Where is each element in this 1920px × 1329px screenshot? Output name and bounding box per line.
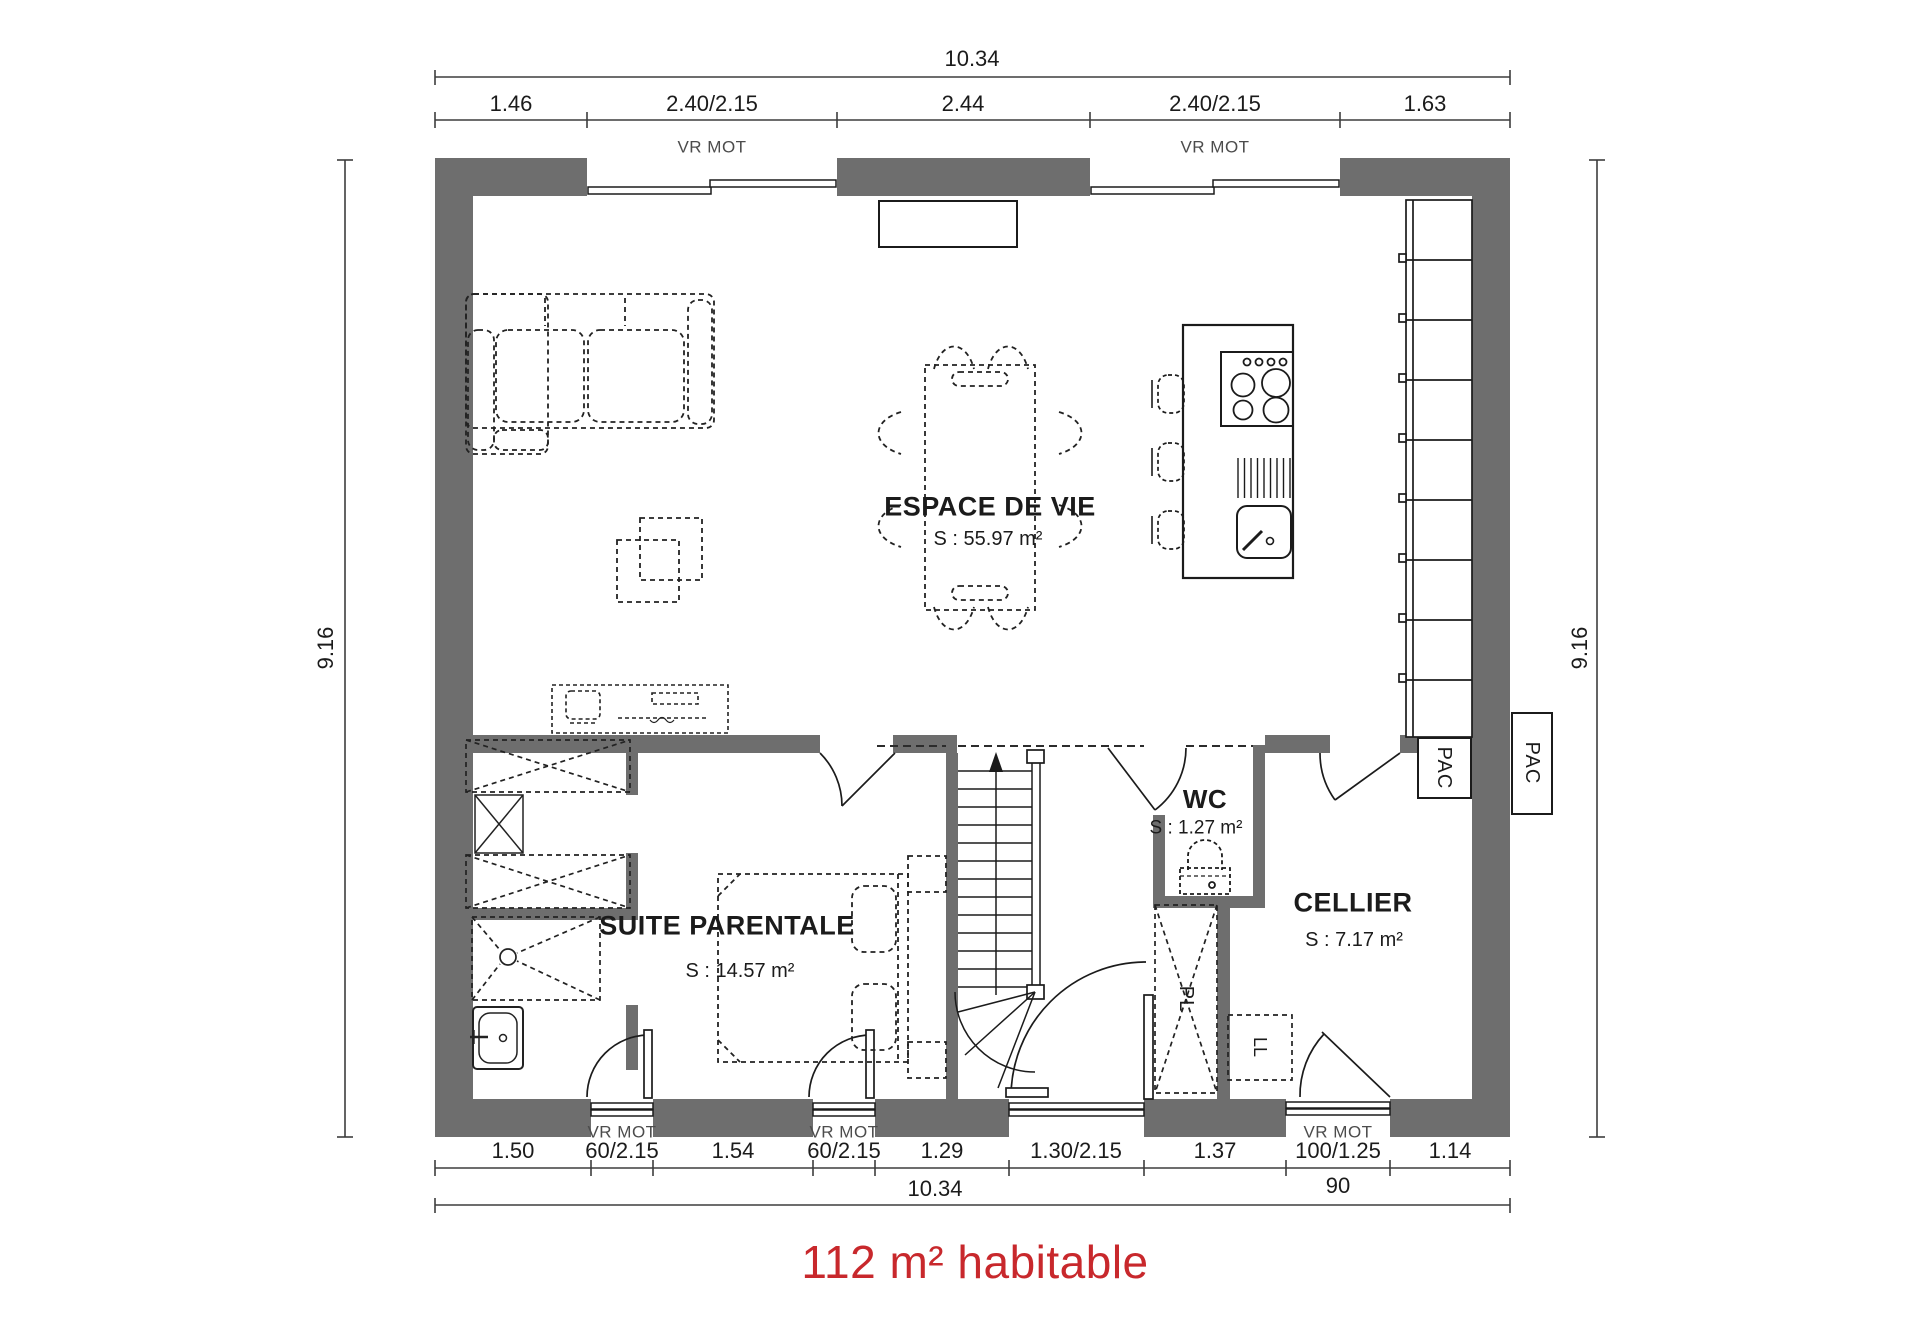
wall-suite-north-stub — [893, 735, 957, 753]
dim-bottom-seg: 1.50 — [492, 1140, 535, 1162]
dim-top-seg: 1.46 — [490, 93, 533, 115]
wall-pl-right — [1217, 905, 1230, 1099]
shutter-label: VR MOT — [587, 1124, 656, 1141]
dim-bottom-seg: 100/1.25 — [1295, 1140, 1381, 1162]
chair-icon — [934, 607, 974, 630]
dim-bottom-overall: 10.34 — [907, 1178, 962, 1200]
shutter-label: VR MOT — [677, 139, 746, 156]
coffee-table-icon — [617, 518, 702, 602]
dim-bottom-seg: 1.54 — [712, 1140, 755, 1162]
pl-label: PL — [1176, 986, 1196, 1012]
dim-bottom-seg: 1.30/2.15 — [1030, 1140, 1122, 1162]
door-swing-icon — [1011, 962, 1153, 1099]
sill-icon — [1009, 1103, 1144, 1116]
dim-top-seg: 1.63 — [1404, 93, 1447, 115]
toilet-icon — [1180, 840, 1230, 894]
sofa-icon — [466, 294, 714, 454]
door-swing-icon — [809, 1030, 874, 1098]
wall-bottom-segment — [1144, 1099, 1286, 1137]
dim-right: 9.16 — [1569, 627, 1591, 670]
stove-icon — [1221, 352, 1293, 426]
shutter-label: VR MOT — [1303, 1124, 1372, 1141]
wall-bath-stub1 — [626, 737, 638, 795]
nightstand-icon — [908, 856, 946, 1078]
sill-icon — [591, 1103, 653, 1116]
pac-label: PAC — [1522, 742, 1542, 785]
dim-top-overall: 10.34 — [944, 48, 999, 70]
wall-bath-stub3 — [626, 1005, 638, 1070]
room-name-wc: WC — [1183, 786, 1227, 812]
shower-icon — [472, 917, 600, 1000]
sill-icon — [813, 1103, 875, 1116]
stairs-icon — [955, 750, 1048, 1097]
chair-icon — [988, 607, 1028, 630]
dim-door-swing: 90 — [1326, 1175, 1350, 1197]
wall-wc-right — [1253, 745, 1265, 908]
door-swing-icon — [1108, 748, 1186, 810]
dim-bottom-seg: 60/2.15 — [585, 1140, 658, 1162]
chair-icon — [1059, 412, 1082, 454]
room-area-wc: S : 1.27 m² — [1150, 819, 1243, 838]
dim-bottom-seg: 1.37 — [1194, 1140, 1237, 1162]
sliding-window-icon — [1091, 180, 1339, 194]
door-swing-icon — [587, 1030, 652, 1098]
shutter-label: VR MOT — [1180, 139, 1249, 156]
sideboard — [878, 200, 1018, 248]
desk-icon — [552, 685, 728, 733]
pac-label: PAC — [1434, 747, 1454, 790]
floor-plan: 10.34 1.46 2.40/2.15 2.44 2.40/2.15 1.63… — [0, 0, 1920, 1329]
dim-left: 9.16 — [315, 627, 337, 670]
dining-table-icon — [879, 347, 1082, 630]
dim-top-seg: 2.40/2.15 — [666, 93, 758, 115]
sliding-window-icon — [588, 180, 836, 194]
dim-top-seg: 2.40/2.15 — [1169, 93, 1261, 115]
room-area-cellier: S : 7.17 m² — [1305, 930, 1403, 950]
room-area-living: S : 55.97 m² — [934, 529, 1043, 549]
dim-bottom-seg: 60/2.15 — [807, 1140, 880, 1162]
dim-bottom-seg: 1.29 — [921, 1140, 964, 1162]
wall-right — [1472, 158, 1510, 1137]
wall-top-segment — [837, 158, 1090, 196]
room-name-suite: SUITE PARENTALE — [599, 913, 855, 940]
door-swing-icon — [820, 753, 895, 806]
shutter-label: VR MOT — [809, 1124, 878, 1141]
kitchen-cabinets-icon — [1399, 200, 1472, 737]
bar-stool-icon — [1158, 375, 1184, 549]
wall-bottom-segment — [875, 1099, 1009, 1137]
room-name-living: ESPACE DE VIE — [884, 494, 1096, 521]
room-area-suite: S : 14.57 m² — [686, 961, 795, 981]
wall-wc-bottom — [1153, 896, 1265, 908]
drainer-icon — [1238, 458, 1290, 498]
sill-icon — [1286, 1102, 1390, 1115]
wall-bottom-segment — [653, 1099, 813, 1137]
dim-bottom-seg: 1.14 — [1429, 1140, 1472, 1162]
door-swing-icon — [1320, 753, 1400, 800]
wardrobe-icon — [466, 855, 630, 908]
kitchen-sink-icon — [1237, 506, 1291, 558]
chair-icon — [879, 412, 902, 454]
door-swing-icon — [1300, 1032, 1390, 1097]
bathroom-icons — [466, 740, 630, 1069]
chair-icon — [934, 347, 974, 370]
duct-icon — [475, 795, 523, 853]
bathroom-sink-icon — [470, 1007, 523, 1069]
wall-suite-north — [473, 735, 820, 753]
wall-left — [435, 158, 473, 1137]
kitchen-island-icon — [1152, 325, 1293, 578]
chair-icon — [988, 347, 1028, 370]
dim-top-seg: 2.44 — [942, 93, 985, 115]
wall-stair-left — [946, 753, 958, 1099]
wall-cellier-north-left — [1265, 735, 1330, 753]
room-name-cellier: CELLIER — [1293, 890, 1412, 917]
ll-label: LL — [1251, 1037, 1269, 1057]
plan-title: 112 m² habitable — [801, 1235, 1148, 1289]
